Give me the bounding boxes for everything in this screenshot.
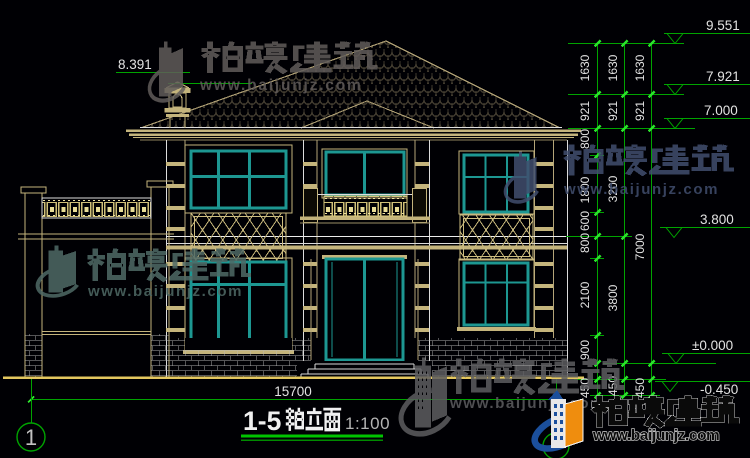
svg-text:1: 1 — [25, 425, 37, 450]
svg-text:921: 921 — [578, 101, 592, 121]
svg-text:-0.450: -0.450 — [700, 382, 738, 397]
svg-text:8.391: 8.391 — [118, 57, 152, 72]
svg-text:7.000: 7.000 — [704, 103, 738, 118]
svg-text:www.baijunjz.com: www.baijunjz.com — [199, 77, 363, 94]
svg-text:7.921: 7.921 — [706, 69, 740, 84]
svg-text:1630: 1630 — [578, 54, 592, 81]
svg-text:450: 450 — [633, 378, 647, 398]
svg-text:www.baijunjz.com: www.baijunjz.com — [592, 427, 719, 444]
svg-text:www.baijunjz.com: www.baijunjz.com — [563, 181, 719, 198]
svg-text:1:100: 1:100 — [345, 414, 390, 433]
svg-text:7000: 7000 — [633, 233, 647, 260]
svg-text:±0.000: ±0.000 — [692, 338, 733, 353]
svg-text:921: 921 — [606, 101, 620, 121]
svg-text:900: 900 — [578, 340, 592, 360]
svg-text:2100: 2100 — [578, 281, 592, 308]
svg-text:15700: 15700 — [274, 384, 312, 399]
svg-text:921: 921 — [633, 101, 647, 121]
svg-text:600: 600 — [578, 211, 592, 231]
svg-text:9.551: 9.551 — [706, 18, 740, 33]
svg-text:1-5: 1-5 — [243, 406, 281, 436]
svg-text:3.800: 3.800 — [700, 212, 734, 227]
svg-text:1630: 1630 — [633, 54, 647, 81]
svg-text:800: 800 — [578, 129, 592, 149]
svg-text:3800: 3800 — [606, 284, 620, 311]
svg-text:www.baijunjz.com: www.baijunjz.com — [87, 283, 243, 300]
svg-text:800: 800 — [578, 233, 592, 253]
svg-text:1630: 1630 — [606, 54, 620, 81]
